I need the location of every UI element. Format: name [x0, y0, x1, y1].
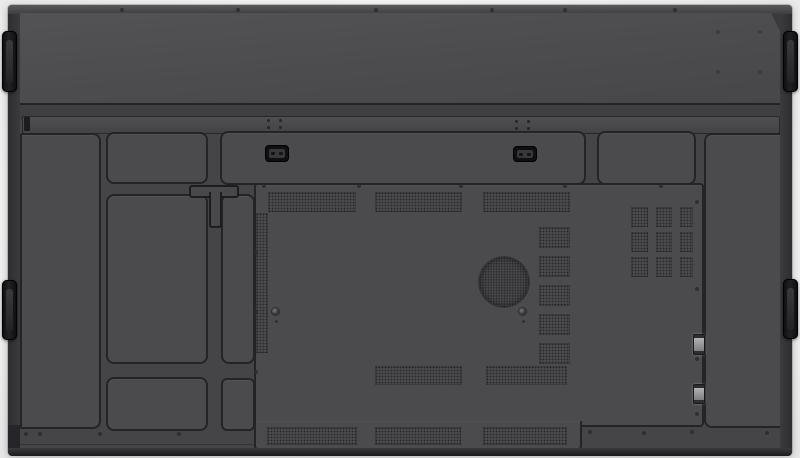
vent-square [539, 227, 570, 248]
screw [459, 184, 463, 188]
panel-mid-top [106, 132, 208, 184]
vent-strip [268, 192, 356, 212]
vent-strip [375, 366, 462, 385]
vent-square [539, 256, 570, 277]
vent-strip [483, 427, 567, 445]
vent-strip [375, 192, 462, 212]
speaker-grille [479, 257, 529, 307]
t-slot-stem [209, 192, 222, 228]
screw [262, 184, 266, 188]
bottom-left-corner-step [8, 425, 20, 449]
vent-square [539, 343, 570, 364]
vent-strip [267, 427, 357, 445]
screw [588, 430, 592, 434]
screw [490, 8, 494, 12]
screw [673, 8, 677, 12]
screw [236, 8, 240, 12]
screw [279, 126, 282, 129]
screw [519, 308, 526, 315]
screw [716, 30, 720, 34]
vent-cell [680, 207, 693, 227]
screw [254, 251, 258, 255]
vent-cell [656, 232, 672, 252]
connector-recess [517, 150, 533, 158]
product-photo-stage [0, 0, 800, 458]
screw [659, 184, 663, 188]
screw [120, 8, 124, 12]
screw [716, 70, 720, 74]
vent-grid-3x3 [631, 207, 693, 277]
vent-square [539, 314, 570, 335]
screw [254, 310, 258, 314]
screw [695, 357, 699, 361]
connector-recess [269, 149, 285, 158]
vent-cell [680, 257, 693, 277]
screw [758, 70, 762, 74]
vent-cell [631, 257, 648, 277]
connector-cutout [513, 146, 537, 162]
screw [38, 432, 42, 436]
screw [515, 127, 518, 130]
panel-low-narrow [221, 378, 255, 431]
seam-hinge [693, 334, 705, 355]
screw [690, 430, 694, 434]
screw [515, 120, 518, 123]
panel-narrow-vertical [221, 194, 255, 364]
rail-end-notch [24, 117, 30, 131]
screw [374, 8, 378, 12]
handle-left-top [2, 31, 17, 92]
vent-square [539, 285, 570, 306]
vent-cell [656, 207, 672, 227]
screw [98, 432, 102, 436]
vent-cell [631, 207, 648, 227]
screw [24, 432, 28, 436]
vent-strip [483, 192, 570, 212]
screw [272, 308, 279, 315]
screw [527, 120, 530, 123]
panel-top-right [597, 131, 696, 185]
panel-low-mid [106, 377, 208, 431]
handle-right-middle [783, 279, 798, 339]
screw [275, 320, 278, 323]
seam-hinge [693, 384, 705, 404]
vent-cell [656, 257, 672, 277]
screw [279, 119, 282, 122]
screw [563, 8, 567, 12]
vent-cell [680, 232, 693, 252]
screw [695, 200, 699, 204]
screw [522, 320, 525, 323]
vent-cell [631, 232, 648, 252]
screw [642, 431, 646, 435]
screw [267, 119, 270, 122]
screw [357, 184, 361, 188]
screw [177, 432, 181, 436]
vent-strip-vertical [256, 213, 268, 353]
screw [758, 30, 762, 34]
vent-strip [375, 427, 461, 445]
handle-right-top [783, 31, 798, 92]
bottom-edge-strip [8, 448, 792, 456]
top-rear-cover [12, 11, 780, 103]
screw [254, 370, 258, 374]
screw [765, 431, 769, 435]
vent-strip [486, 366, 567, 385]
screw [563, 184, 567, 188]
panel-left-column [20, 133, 101, 429]
connector-cutout [265, 145, 289, 162]
bottom-band-seam [20, 444, 254, 445]
screw [695, 412, 699, 416]
panel-right-column [704, 133, 785, 428]
panel-mid-left [106, 194, 208, 364]
handle-left-middle [2, 280, 17, 340]
screw [267, 126, 270, 129]
screw [527, 127, 530, 130]
screw [695, 287, 699, 291]
